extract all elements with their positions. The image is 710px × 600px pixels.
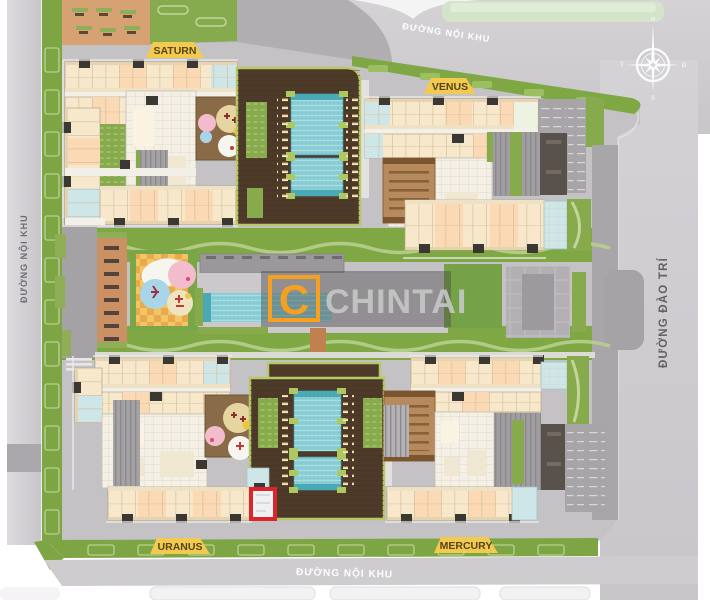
svg-text:Đ: Đ (682, 63, 687, 69)
svg-text:MERCURY: MERCURY (440, 540, 493, 552)
svg-text:VENUS: VENUS (432, 81, 468, 93)
svg-text:CHINTAI: CHINTAI (325, 283, 467, 321)
svg-text:N: N (651, 17, 655, 23)
svg-text:C: C (279, 276, 309, 323)
svg-text:T: T (620, 63, 624, 69)
svg-text:ĐƯỜNG NỘI KHU: ĐƯỜNG NỘI KHU (18, 214, 29, 303)
svg-text:URANUS: URANUS (158, 541, 203, 553)
svg-text:SATURN: SATURN (154, 45, 197, 57)
svg-text:S: S (651, 96, 655, 102)
svg-text:ĐƯỜNG ĐÀO TRÍ: ĐƯỜNG ĐÀO TRÍ (657, 257, 670, 368)
